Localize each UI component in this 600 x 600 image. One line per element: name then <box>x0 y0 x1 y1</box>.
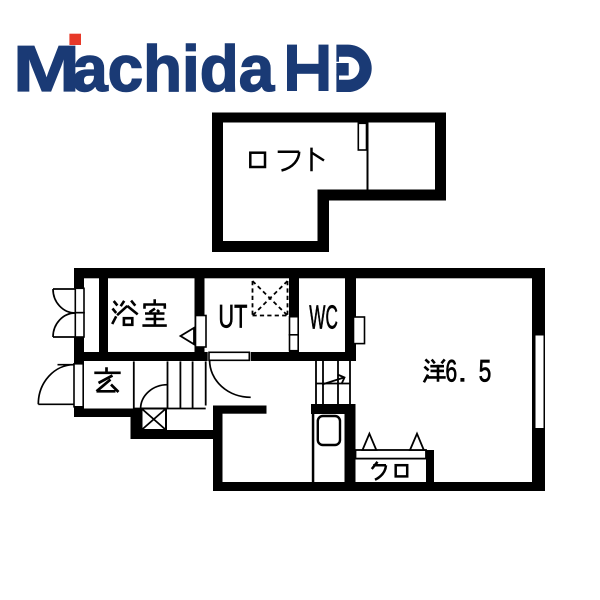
svg-text:5: 5 <box>479 353 492 389</box>
svg-text:UT: UT <box>218 298 247 334</box>
svg-text:6: 6 <box>445 353 457 389</box>
svg-text:achida: achida <box>72 32 275 105</box>
svg-text:WC: WC <box>309 299 338 337</box>
